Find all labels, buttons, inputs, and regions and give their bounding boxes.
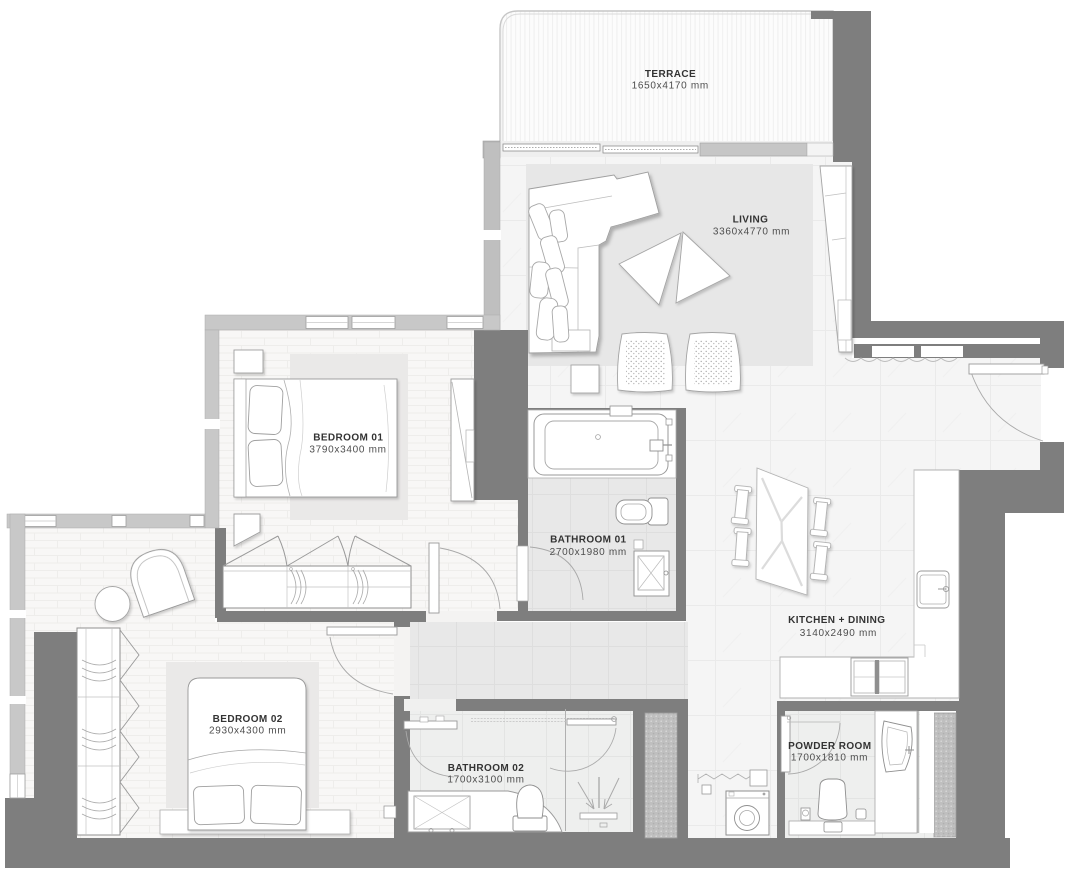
svg-text:2930x4300 mm: 2930x4300 mm	[209, 726, 286, 737]
svg-text:POWDER ROOM: POWDER ROOM	[788, 741, 871, 752]
svg-text:TERRACE: TERRACE	[645, 69, 696, 80]
svg-text:BATHROOM 01: BATHROOM 01	[550, 535, 626, 546]
svg-text:2700x1980 mm: 2700x1980 mm	[550, 547, 627, 558]
svg-text:KITCHEN + DINING: KITCHEN + DINING	[788, 615, 885, 626]
svg-text:BATHROOM 02: BATHROOM 02	[448, 763, 524, 774]
svg-text:3790x3400 mm: 3790x3400 mm	[309, 445, 386, 456]
svg-text:1650x4170 mm: 1650x4170 mm	[632, 81, 709, 92]
svg-text:BEDROOM 02: BEDROOM 02	[213, 714, 283, 725]
svg-text:3140x2490 mm: 3140x2490 mm	[800, 628, 877, 639]
svg-text:1700x1810 mm: 1700x1810 mm	[791, 753, 868, 764]
svg-text:LIVING: LIVING	[733, 215, 769, 226]
svg-text:1700x3100 mm: 1700x3100 mm	[447, 775, 524, 786]
svg-text:3360x4770 mm: 3360x4770 mm	[713, 227, 790, 238]
svg-text:BEDROOM 01: BEDROOM 01	[313, 433, 383, 444]
